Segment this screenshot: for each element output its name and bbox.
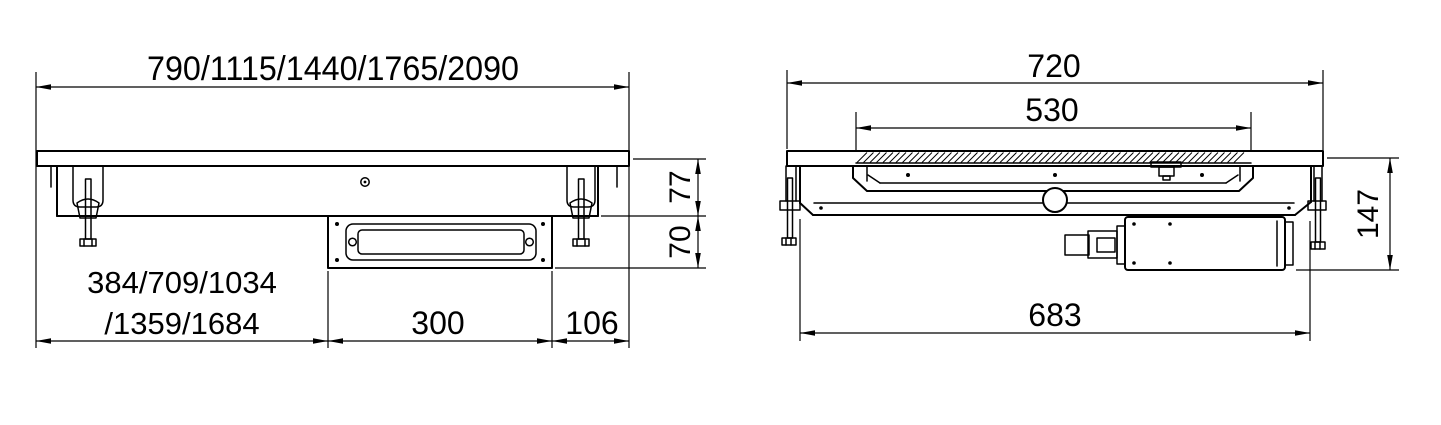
motor-screw (1168, 222, 1172, 226)
plug-flange (1117, 226, 1125, 264)
clamp-left-channel (73, 166, 103, 207)
slot-hole-right (526, 238, 534, 246)
dimension-labels: 790/1115/1440/1765/2090 384/709/1034 /13… (87, 48, 1385, 341)
dim-front-left-span-label-line1: 384/709/1034 (87, 265, 277, 300)
dim-height-label: 147 (1352, 189, 1385, 239)
side-clamp-left-screw (788, 178, 793, 238)
dim-overhang-label: 106 (565, 305, 618, 341)
plug-tip (1065, 235, 1089, 255)
casing-screw (819, 206, 823, 210)
tub-screw (906, 173, 910, 177)
sensor-nub (1163, 176, 1170, 180)
plug-detail (1097, 238, 1115, 252)
dim-box-width-label: 300 (411, 305, 464, 341)
clamp-right-screw (579, 179, 585, 239)
box-screw (335, 258, 339, 262)
tub-chamfer-right (1226, 175, 1238, 183)
technical-drawing-canvas: 790/1115/1440/1765/2090 384/709/1034 /13… (0, 0, 1441, 425)
clamp-right (567, 166, 595, 246)
tub-screw (1053, 173, 1057, 177)
side-clamp-left-foot (782, 238, 796, 245)
side-view (780, 151, 1326, 270)
slot-hole-left (349, 238, 357, 246)
side-clamp-right-foot (1311, 242, 1325, 249)
tub-screw (1200, 173, 1204, 177)
motor-screw (1168, 261, 1172, 265)
dim-depth-bottom-label: 70 (664, 225, 697, 258)
box-screw (541, 222, 545, 226)
casing-screw (1287, 206, 1291, 210)
dim-depth-top-label: 77 (664, 170, 697, 203)
motor-screw (1132, 261, 1136, 265)
sensor-body (1159, 167, 1174, 176)
technical-drawing: 790/1115/1440/1765/2090 384/709/1034 /13… (0, 0, 1441, 425)
plug-body (1088, 231, 1117, 258)
motor-end-cap (1285, 222, 1293, 265)
clamp-right-foot (573, 239, 589, 246)
front-top-panel (37, 151, 629, 166)
hatch-pattern (857, 153, 1244, 163)
box-screw (541, 258, 545, 262)
slot-opening (358, 230, 524, 254)
center-screw-dot (364, 181, 367, 184)
clamp-left-screw (86, 179, 92, 239)
drain-port (1043, 188, 1067, 212)
motor-housing (1125, 217, 1285, 270)
dim-front-left-span-label-line2: /1359/1684 (104, 306, 259, 341)
clamp-left-foot (80, 239, 96, 246)
control-box (328, 216, 552, 268)
side-clamp-left (780, 166, 800, 245)
motor-screw (1132, 222, 1136, 226)
front-view (37, 151, 629, 268)
tub-chamfer-left (868, 175, 880, 183)
clamp-left (73, 166, 103, 246)
motor-unit (1065, 217, 1293, 270)
box-screw (335, 222, 339, 226)
dim-front-width-label: 790/1115/1440/1765/2090 (147, 50, 519, 88)
side-clamp-left-bar (780, 201, 800, 210)
dim-side-width-label: 720 (1027, 48, 1080, 84)
dim-side-bottom-label: 683 (1028, 297, 1081, 333)
dim-cutout-label: 530 (1025, 92, 1078, 128)
clamp-right-channel (567, 166, 595, 207)
casing-chamfer-left (800, 203, 813, 215)
